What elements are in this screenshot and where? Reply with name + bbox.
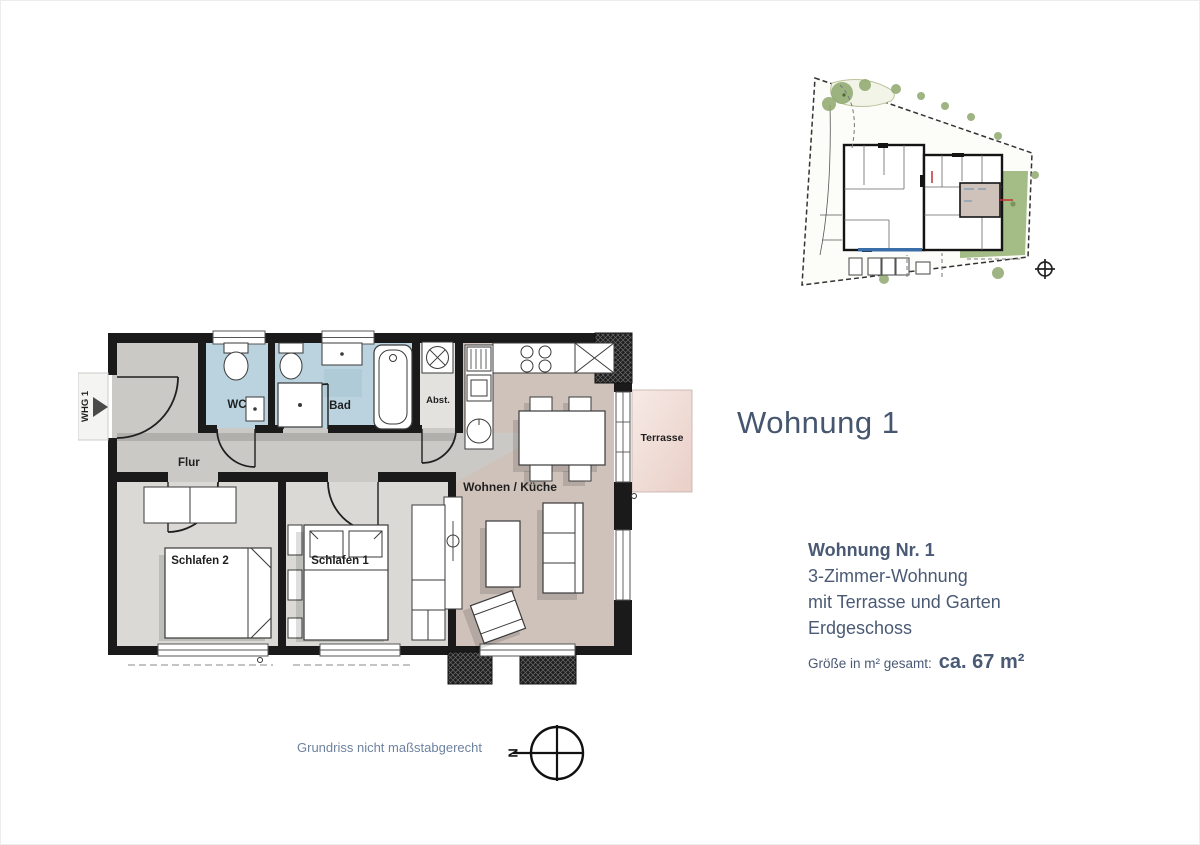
size-value: ca. 67 m² [939,651,1025,674]
entrance-label: WHG 1 [80,390,91,422]
tv-unit-icon [444,497,462,609]
washer-icon [422,342,453,373]
entrance-marker: WHG 1 [78,373,108,440]
blue-edge [858,248,922,252]
bath-shade [324,369,362,397]
hall-shadow [117,433,454,441]
wohnen-label: Wohnen / Küche [463,480,557,494]
marker-dot1 [258,658,263,663]
floorplan-sheet: Terrasse [0,0,1200,845]
terrace-label: Terrasse [640,432,683,444]
size-label: Größe in m² gesamt: [808,656,932,671]
sofa-icon [537,503,583,600]
terrace: Terrasse [632,390,692,492]
detail-line-2: 3-Zimmer-Wohnung [808,563,1001,589]
scale-disclaimer: Grundriss nicht maßstabgerecht [297,740,482,755]
exterior-block-bottom1 [448,652,492,684]
coffee-table-icon [480,521,520,594]
wc-label: WC [227,399,246,411]
tree-trunk-dot [842,93,845,96]
detail-line-3: mit Terrasse und Garten [808,589,1001,615]
site-plan [792,55,1062,300]
marker-dot2 [632,494,637,499]
compass-north-label: N [506,748,521,757]
bed1-icon [288,505,445,642]
detail-line-4: Erdgeschoss [808,615,1001,641]
detail-line-1: Wohnung Nr. 1 [808,537,1001,563]
flur-label: Flur [178,457,200,469]
floor-plan: Terrasse [78,325,698,690]
highlighted-unit [960,183,1000,217]
schlafen1-label: Schlafen 1 [311,555,369,567]
page-title: Wohnung 1 [737,405,900,441]
apartment-details: Wohnung Nr. 1 3-Zimmer-Wohnung mit Terra… [808,537,1001,641]
abst-label: Abst. [426,395,450,406]
compass-icon: N [505,722,600,784]
garden-tree2-icon [1010,201,1015,206]
schlafen2-label: Schlafen 2 [171,555,229,567]
size-row: Größe in m² gesamt: ca. 67 m² [808,651,1024,674]
exterior-block-bottom2 [520,652,576,684]
building-footprint [844,143,1013,252]
siteplan-compass-icon [1035,259,1055,279]
bad-label: Bad [329,400,351,412]
